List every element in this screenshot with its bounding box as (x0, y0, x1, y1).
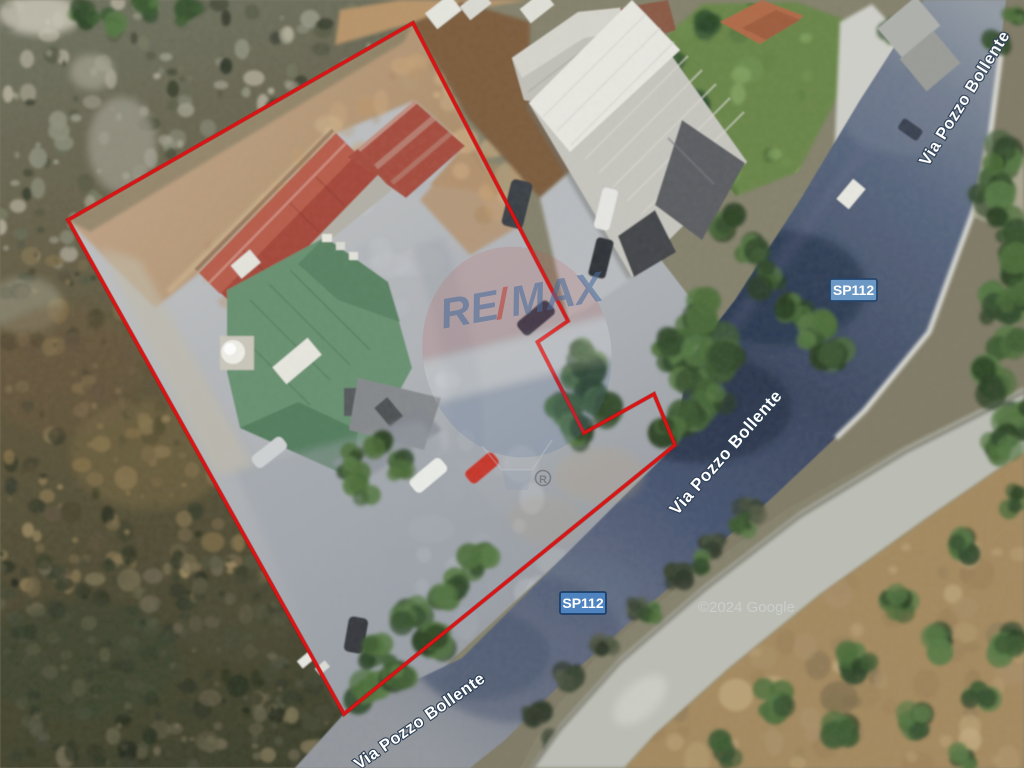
svg-text:R: R (539, 474, 547, 486)
svg-text:SP112: SP112 (833, 282, 874, 298)
svg-text:©2024 Google: ©2024 Google (698, 599, 795, 616)
svg-text:SP112: SP112 (562, 595, 603, 611)
